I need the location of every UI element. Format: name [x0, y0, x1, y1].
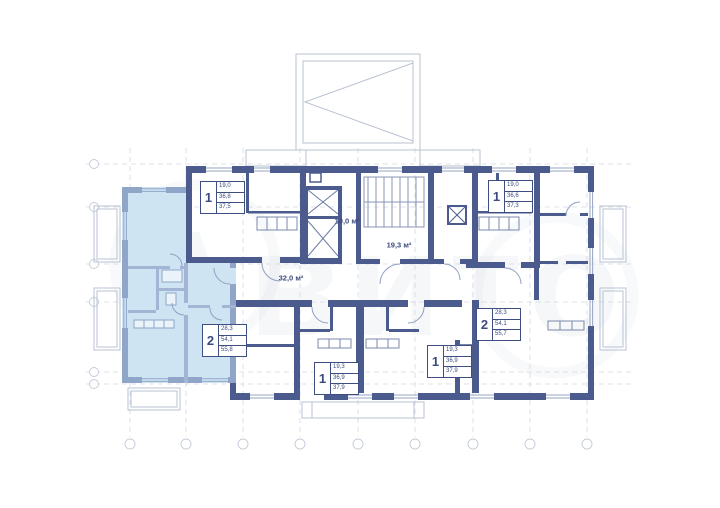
living-area: 19,3 — [444, 346, 471, 356]
apartment-label-1-bottom-left: 1 19,3 36,9 37,9 — [314, 362, 359, 395]
floor-plan-drawing: Авито — [0, 0, 720, 508]
lift-lobby-area-label: 10,0 м² — [335, 217, 360, 226]
apartment-label-1-top-left: 1 19,0 36,8 37,5 — [200, 181, 245, 214]
area: 36,8 — [217, 192, 244, 203]
living-area: 19,3 — [331, 363, 358, 373]
room-count: 1 — [315, 363, 330, 394]
room-count: 1 — [201, 182, 216, 213]
apartment-label-1-top-right: 1 19,0 36,6 37,3 — [488, 180, 533, 213]
roof-outline — [246, 54, 480, 166]
area: 54,1 — [219, 335, 246, 346]
entrance-porch — [302, 402, 424, 418]
total-area: 37,3 — [505, 201, 532, 212]
living-area: 28,3 — [493, 309, 520, 319]
living-area: 19,0 — [217, 182, 244, 192]
living-area: 28,3 — [219, 325, 246, 335]
corridor-area-label: 32,0 м² — [279, 274, 304, 283]
total-area: 37,9 — [444, 366, 471, 377]
total-area: 37,5 — [217, 202, 244, 213]
stairwell-area-label: 19,3 м² — [387, 241, 412, 250]
total-area: 37,9 — [331, 383, 358, 394]
apartment-label-1-bottom-right: 1 19,3 36,9 37,9 — [427, 345, 472, 378]
living-area: 19,0 — [505, 181, 532, 191]
room-count: 1 — [428, 346, 443, 377]
room-count: 2 — [477, 309, 492, 340]
area: 36,6 — [505, 191, 532, 202]
area: 36,9 — [444, 356, 471, 367]
apartment-label-2-highlighted: 2 28,3 54,1 55,8 — [202, 324, 247, 357]
area: 54,1 — [493, 319, 520, 330]
total-area: 55,7 — [493, 329, 520, 340]
floor-plan-screenshot: Авито — [0, 0, 720, 508]
room-count: 1 — [489, 181, 504, 212]
area: 36,9 — [331, 373, 358, 384]
total-area: 55,8 — [219, 345, 246, 356]
apartment-label-2-right: 2 28,3 54,1 55,7 — [476, 308, 521, 341]
room-count: 2 — [203, 325, 218, 356]
